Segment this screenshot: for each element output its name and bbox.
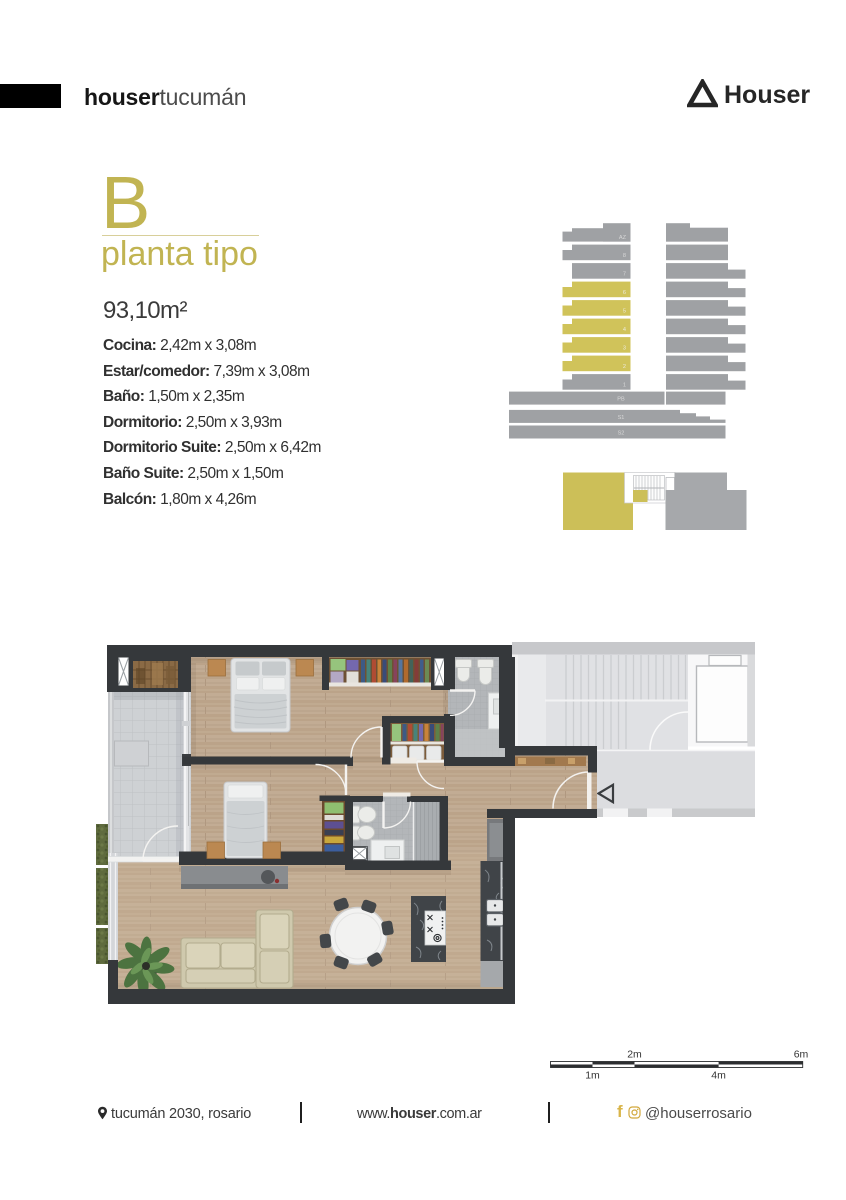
svg-text:8: 8 — [623, 253, 626, 259]
svg-text:2: 2 — [623, 364, 626, 370]
svg-text:3: 3 — [623, 346, 626, 352]
svg-text:S2: S2 — [618, 431, 625, 437]
svg-text:4: 4 — [623, 327, 626, 333]
svg-text:7: 7 — [623, 272, 626, 278]
svg-text:4m: 4m — [711, 1070, 726, 1082]
svg-text:2m: 2m — [627, 1049, 642, 1061]
svg-text:1m: 1m — [585, 1070, 600, 1082]
svg-text:S1: S1 — [618, 415, 625, 421]
svg-text:PB: PB — [617, 397, 625, 403]
svg-text:6: 6 — [623, 290, 626, 296]
svg-text:5: 5 — [623, 309, 626, 315]
svg-text:1: 1 — [623, 383, 626, 389]
svg-text:AZ: AZ — [619, 235, 627, 241]
svg-text:6m: 6m — [794, 1049, 809, 1061]
